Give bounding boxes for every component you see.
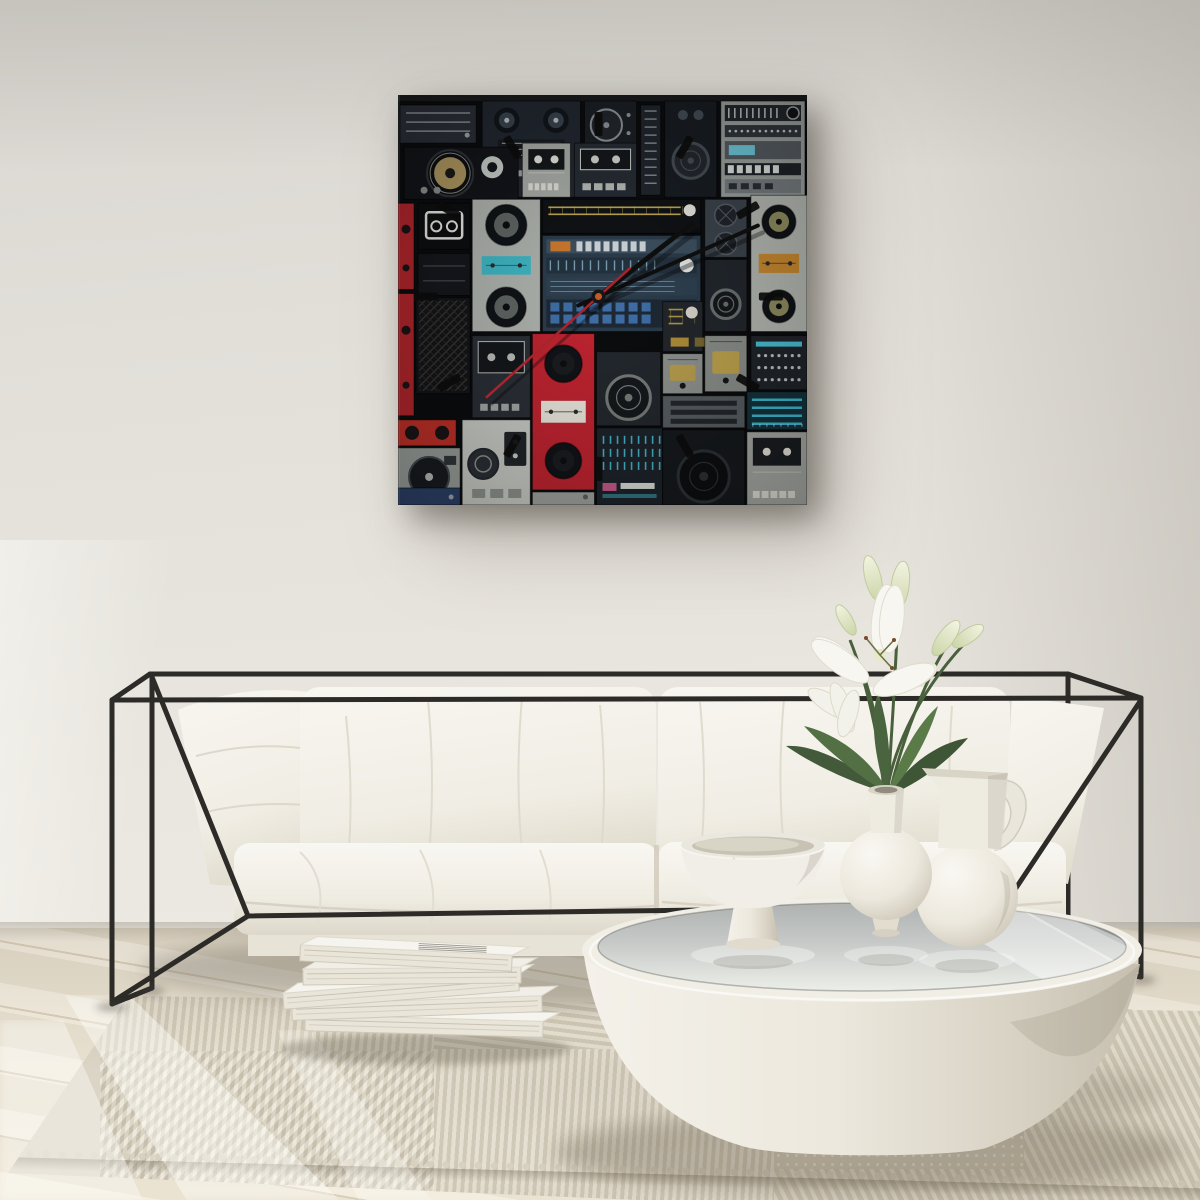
- pitcher-vase: [916, 768, 1026, 947]
- lily-buds: [832, 554, 987, 660]
- coffee-table-and-vases: [0, 0, 1200, 1200]
- lily-bloom-open: [805, 583, 941, 703]
- lily-bouquet: [786, 554, 987, 794]
- living-room-scene: [0, 0, 1200, 1200]
